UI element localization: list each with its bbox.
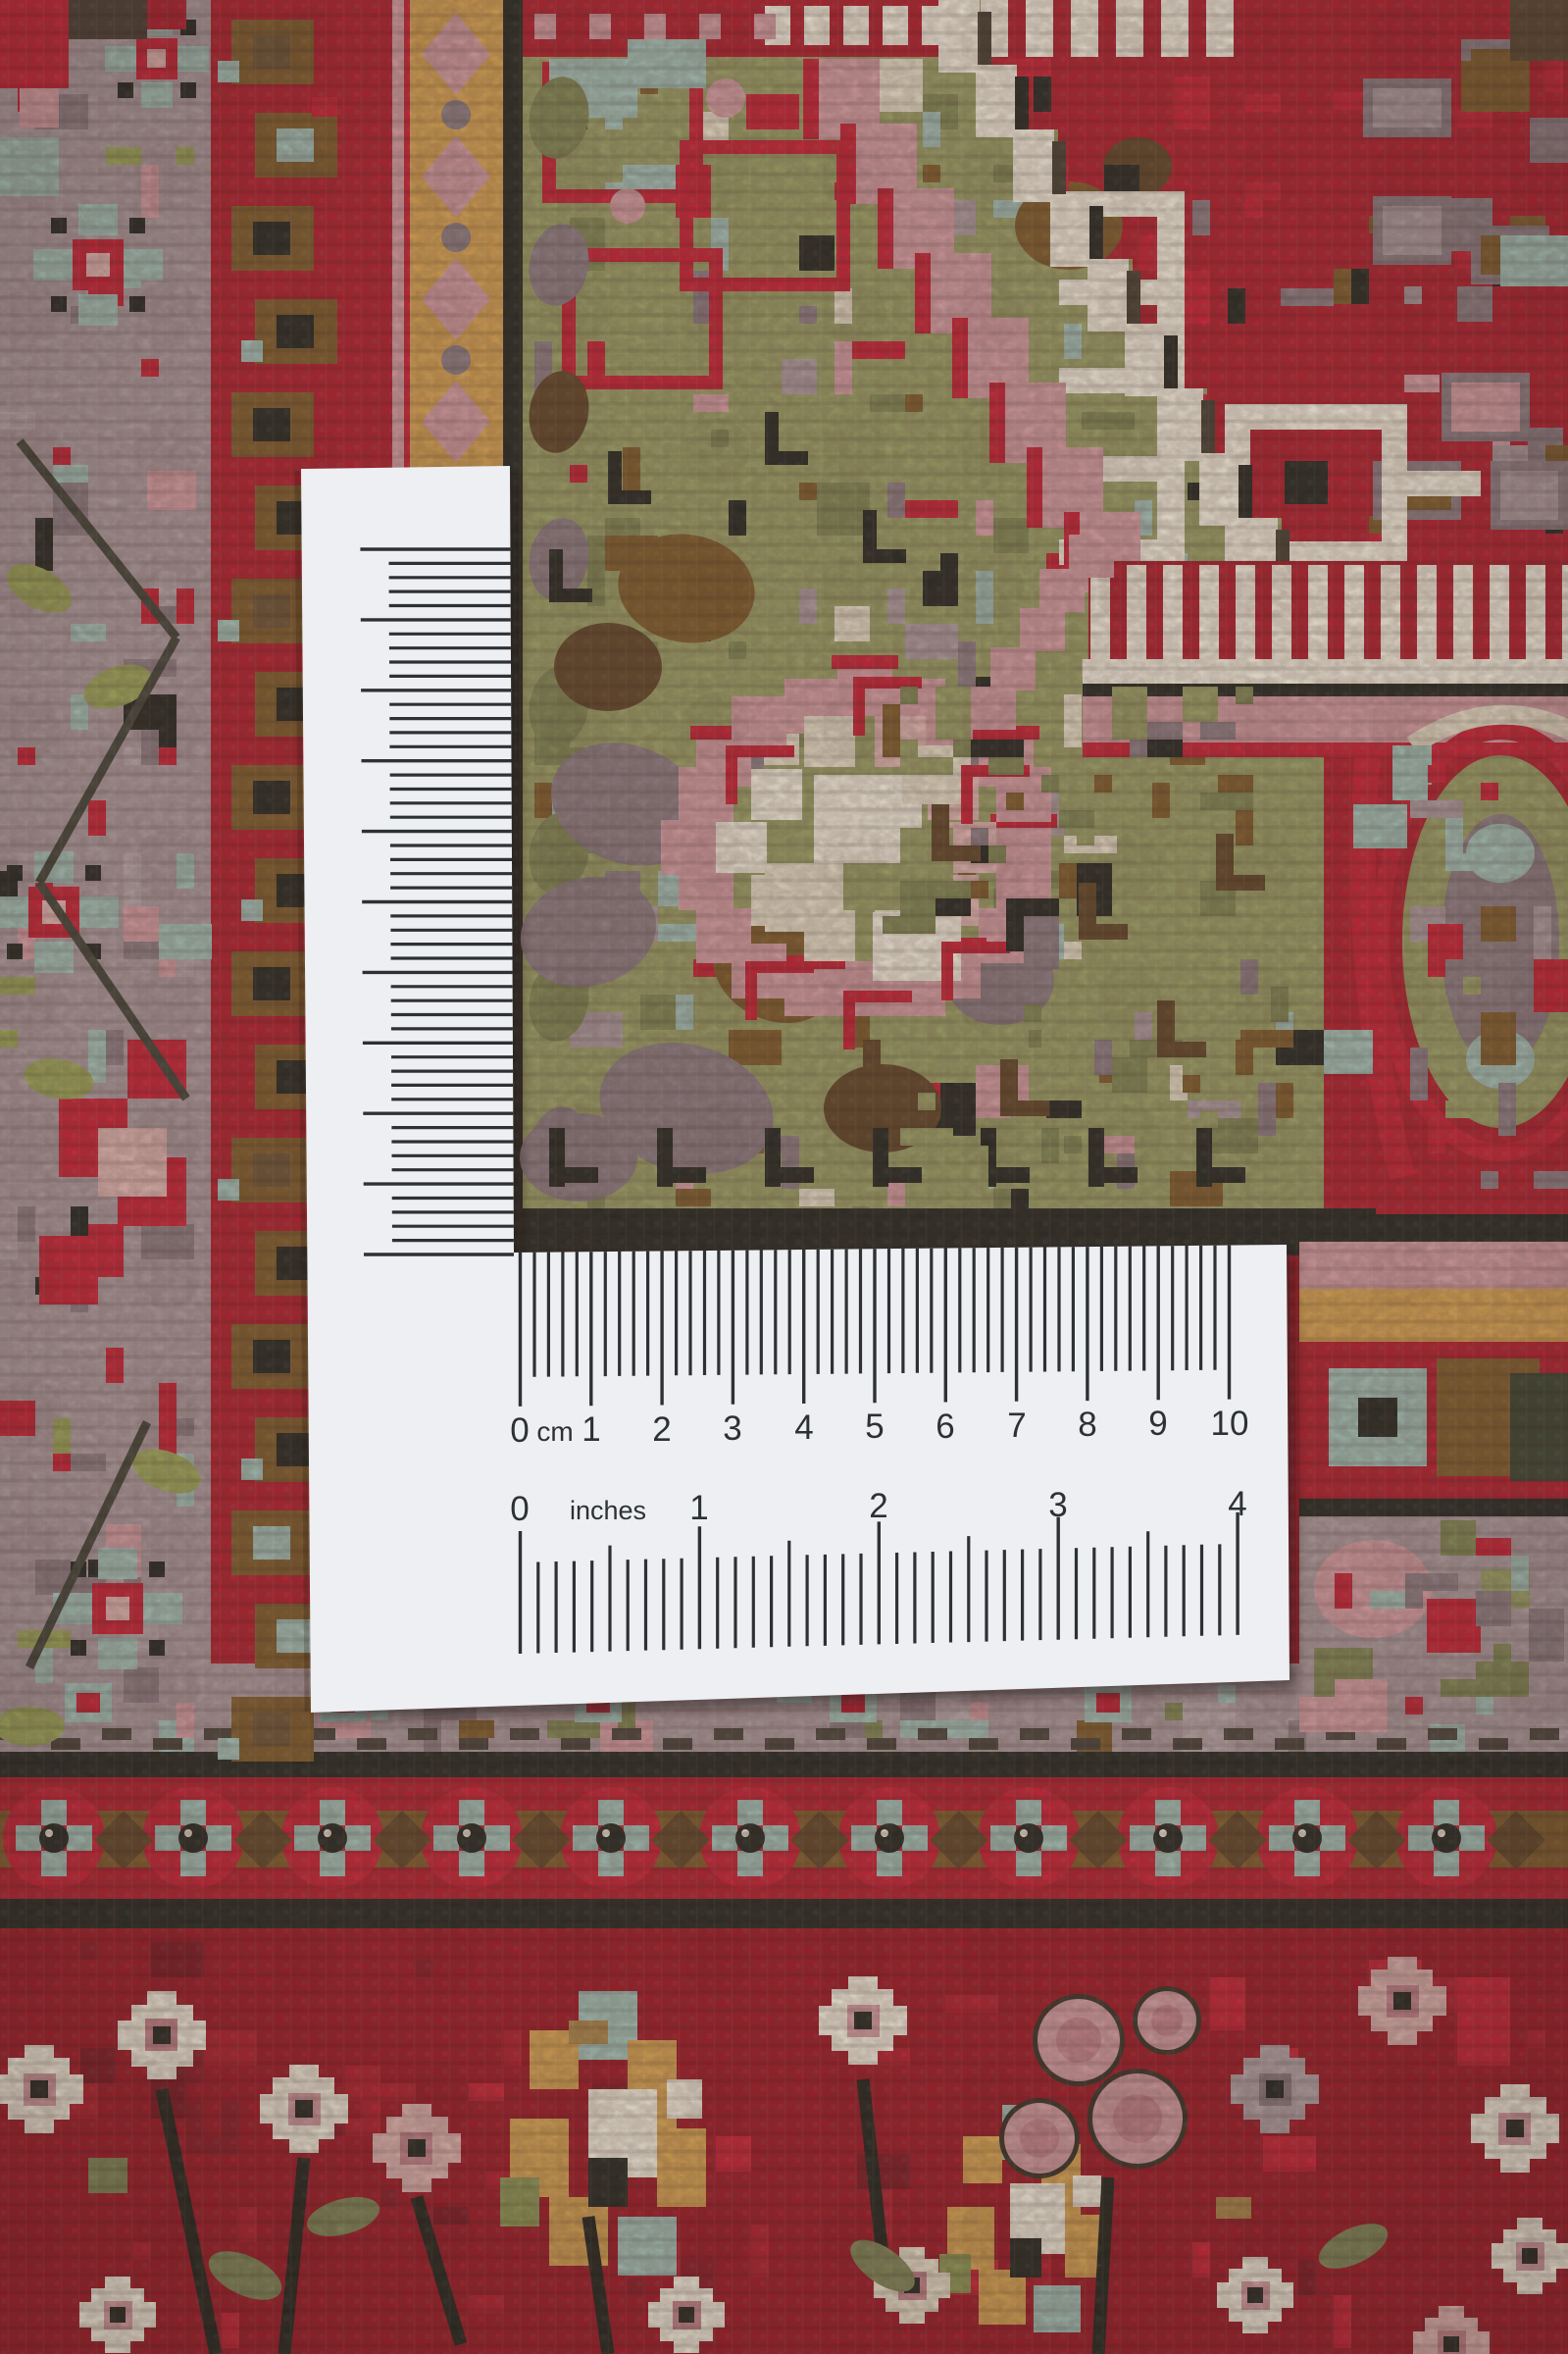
svg-text:inches: inches <box>570 1496 646 1525</box>
svg-text:3: 3 <box>723 1409 741 1448</box>
svg-text:5: 5 <box>865 1407 884 1446</box>
svg-text:0: 0 <box>510 1411 529 1450</box>
svg-text:1: 1 <box>689 1489 708 1527</box>
svg-text:8: 8 <box>1078 1406 1096 1444</box>
svg-text:1: 1 <box>582 1410 600 1449</box>
svg-text:0: 0 <box>510 1490 529 1528</box>
svg-text:10: 10 <box>1211 1405 1249 1443</box>
svg-text:6: 6 <box>936 1407 954 1446</box>
svg-text:4: 4 <box>1228 1485 1246 1523</box>
svg-text:cm: cm <box>536 1416 573 1447</box>
svg-text:9: 9 <box>1148 1405 1167 1443</box>
svg-text:7: 7 <box>1007 1407 1026 1445</box>
svg-text:4: 4 <box>794 1408 813 1447</box>
svg-text:2: 2 <box>869 1487 887 1525</box>
svg-text:3: 3 <box>1048 1486 1067 1524</box>
svg-text:2: 2 <box>652 1410 671 1449</box>
